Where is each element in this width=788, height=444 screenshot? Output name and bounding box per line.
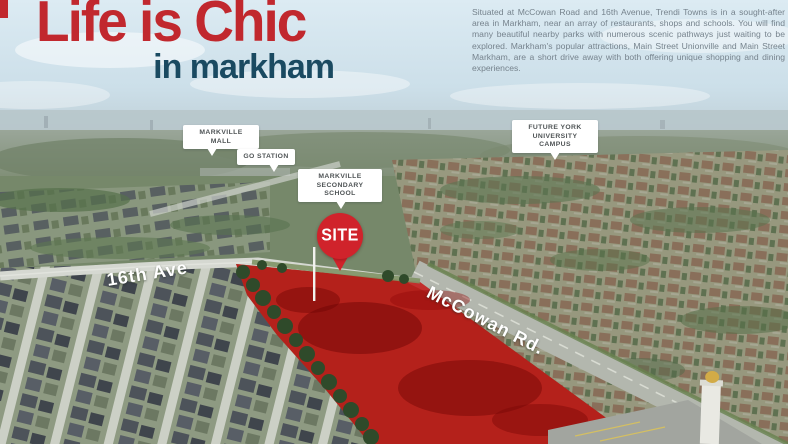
headline: Life is Chic in markham [36, 0, 334, 84]
page-subtitle: in markham [36, 50, 334, 84]
callout-label: GO STATION [243, 153, 288, 160]
site-marker-label: SITE [321, 226, 359, 246]
intro-paragraph: Situated at McCowan Road and 16th Avenue… [472, 7, 785, 74]
pin-balloon: SITE [317, 213, 363, 259]
callout-label: FUTURE YORK UNIVERSITY CAMPUS [528, 124, 581, 148]
flagpole [313, 247, 315, 301]
site-marker-pin: SITE [317, 213, 363, 273]
callout-label: MARKVILLE SECONDARY SCHOOL [317, 173, 364, 197]
callout-label: MARKVILLE MALL [199, 129, 242, 145]
callout-markville-secondary-school: MARKVILLE SECONDARY SCHOOL [298, 169, 382, 202]
corner-accent [0, 0, 8, 18]
callout-go-station: GO STATION [237, 149, 295, 165]
callout-future-york-university-campus: FUTURE YORK UNIVERSITY CAMPUS [512, 120, 598, 153]
page-title: Life is Chic [36, 0, 334, 50]
marketing-flyer: Life is Chic in markham Situated at McCo… [0, 0, 788, 444]
callout-markville-mall: MARKVILLE MALL [183, 125, 259, 149]
